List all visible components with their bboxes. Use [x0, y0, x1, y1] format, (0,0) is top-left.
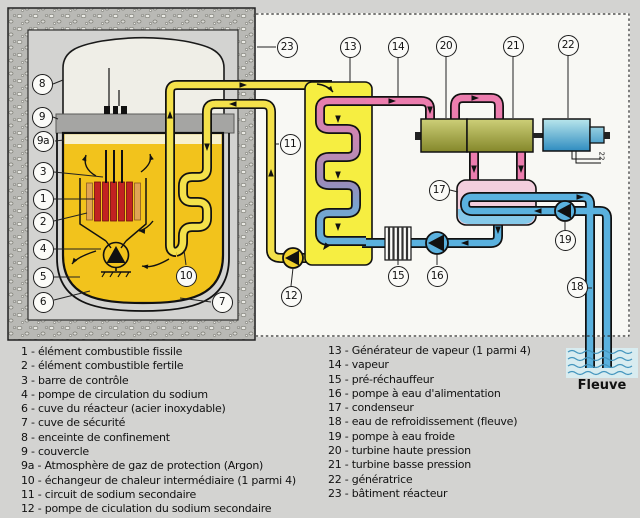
preheater — [385, 227, 411, 260]
cold-water-pump — [555, 201, 575, 221]
legend-item: 17 - condenseur — [328, 401, 628, 415]
callout-8: 8 — [32, 74, 53, 95]
callout-7-label: 7 — [219, 296, 225, 308]
callout-5: 5 — [33, 267, 54, 288]
power-line-small-label: 22 — [597, 152, 605, 161]
fertile-rod — [135, 183, 141, 220]
legend-item: 20 - turbine haute pression — [328, 444, 628, 458]
legend-item: 21 - turbine basse pression — [328, 458, 628, 472]
legend-item: 2 - élément combustible fertile — [21, 359, 321, 373]
callout-9: 9 — [32, 107, 53, 128]
river-label: Fleuve — [562, 378, 640, 393]
legend-item: 9a - Atmosphère de gaz de protection (Ar… — [21, 459, 321, 473]
callout-1-label: 1 — [40, 193, 46, 205]
legend-item: 22 - génératrice — [328, 473, 628, 487]
callout-2-label: 2 — [40, 216, 46, 228]
secondary-sodium-pump — [283, 248, 303, 268]
legend-item: 1 - élément combustible fissile — [21, 345, 321, 359]
callout-12-label: 12 — [285, 290, 298, 302]
feedwater-pump — [426, 232, 448, 254]
callout-16-label: 16 — [431, 270, 444, 282]
callout-11: 11 — [280, 134, 301, 155]
reactor-dome — [63, 38, 224, 115]
callout-9-label: 9 — [39, 111, 45, 123]
callout-3-label: 3 — [40, 166, 46, 178]
callout-22: 22 — [558, 35, 579, 56]
argon-gas-layer — [65, 134, 222, 144]
callout-23: 23 — [277, 37, 298, 58]
hp-turbine — [415, 119, 467, 152]
callout-22-label: 22 — [562, 39, 575, 51]
callout-7: 7 — [212, 292, 233, 313]
callout-2: 2 — [33, 212, 54, 233]
callout-20: 20 — [436, 36, 457, 57]
legend-item: 8 - enceinte de confinement — [21, 431, 321, 445]
legend-item: 9 - couvercle — [21, 445, 321, 459]
fissile-rod — [127, 182, 133, 221]
reactor-diagram: 1 2 3 4 5 6 7 8 9 9a 10 11 12 13 14 15 1… — [0, 0, 640, 518]
callout-8-label: 8 — [39, 78, 45, 90]
callout-17-label: 17 — [433, 184, 446, 196]
callout-18: 18 — [567, 277, 588, 298]
callout-14: 14 — [388, 37, 409, 58]
callout-4: 4 — [33, 239, 54, 260]
fertile-rod — [87, 183, 93, 220]
callout-18-label: 18 — [571, 281, 584, 293]
callout-21: 21 — [503, 36, 524, 57]
callout-19: 19 — [555, 230, 576, 251]
callout-14-label: 14 — [392, 41, 405, 53]
legend-item: 4 - pompe de circulation du sodium — [21, 388, 321, 402]
callout-10-label: 10 — [180, 270, 193, 282]
callout-5-label: 5 — [40, 271, 46, 283]
legend-item: 12 - pompe de ciculation du sodium secon… — [21, 502, 321, 516]
callout-6: 6 — [33, 292, 54, 313]
callout-12: 12 — [281, 286, 302, 307]
callout-15: 15 — [388, 266, 409, 287]
callout-15-label: 15 — [392, 270, 405, 282]
fissile-rod — [103, 182, 109, 221]
fissile-rod — [111, 182, 117, 221]
callout-10: 10 — [176, 266, 197, 287]
callout-17: 17 — [429, 180, 450, 201]
callout-11-label: 11 — [284, 138, 297, 150]
lp-turbine — [467, 119, 533, 152]
fissile-rod — [95, 182, 101, 221]
callout-19-label: 19 — [559, 234, 572, 246]
legend-left-column: 1 - élément combustible fissile 2 - élém… — [21, 345, 321, 517]
callout-20-label: 20 — [440, 40, 453, 52]
legend-item: 18 - eau de refroidissement (fleuve) — [328, 415, 628, 429]
legend-item: 13 - Générateur de vapeur (1 parmi 4) — [328, 344, 628, 358]
legend-right-column: 13 - Générateur de vapeur (1 parmi 4) 14… — [328, 344, 628, 501]
callout-9a-label: 9a — [37, 135, 49, 147]
legend-item: 23 - bâtiment réacteur — [328, 487, 628, 501]
callout-13: 13 — [340, 37, 361, 58]
callout-9a: 9a — [33, 131, 54, 152]
fissile-rod — [119, 182, 125, 221]
callout-6-label: 6 — [40, 296, 46, 308]
callout-3: 3 — [33, 162, 54, 183]
legend-item: 10 - échangeur de chaleur intermédiaire … — [21, 474, 321, 488]
legend-item: 6 - cuve du réacteur (acier inoxydable) — [21, 402, 321, 416]
callout-4-label: 4 — [40, 243, 46, 255]
legend-item: 11 - circuit de sodium secondaire — [21, 488, 321, 502]
legend-item: 3 - barre de contrôle — [21, 374, 321, 388]
callout-23-label: 23 — [281, 41, 294, 53]
legend-item: 19 - pompe à eau froide — [328, 430, 628, 444]
callout-13-label: 13 — [344, 41, 357, 53]
callout-16: 16 — [427, 266, 448, 287]
legend-item: 7 - cuve de sécurité — [21, 416, 321, 430]
callout-21-label: 21 — [507, 40, 520, 52]
callout-1: 1 — [33, 189, 54, 210]
legend-item: 14 - vapeur — [328, 358, 628, 372]
